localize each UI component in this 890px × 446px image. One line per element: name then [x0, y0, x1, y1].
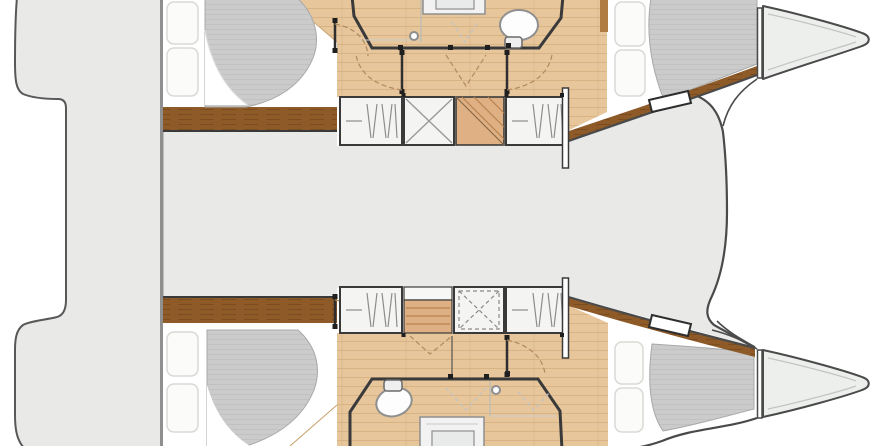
- toilet-tank: [384, 380, 402, 391]
- door-hinge: [333, 18, 338, 23]
- junction-dot: [402, 93, 406, 97]
- pillow: [167, 332, 198, 376]
- shower-drain: [410, 32, 418, 40]
- aft-trim: [163, 297, 337, 323]
- pillow: [615, 50, 645, 96]
- catamaran-floorplan: [0, 0, 890, 446]
- hinge-dot: [398, 45, 403, 50]
- junction-dot: [560, 93, 564, 97]
- door-hinge: [333, 48, 338, 53]
- aft-trim: [163, 107, 337, 131]
- junction-dot: [560, 333, 564, 337]
- sink-basin: [436, 0, 474, 9]
- pillow: [615, 2, 645, 46]
- pillow: [167, 384, 198, 432]
- stairs-landing: [404, 287, 452, 300]
- bow-bulkhead: [758, 350, 763, 418]
- hinge-dot: [448, 45, 453, 50]
- junction-dot: [402, 333, 406, 337]
- toilet: [500, 10, 538, 40]
- door-hinge: [505, 335, 510, 340]
- hinge-dot: [506, 43, 511, 48]
- door-hinge: [505, 50, 510, 55]
- junction-dot: [505, 93, 509, 97]
- sink-basin: [432, 431, 474, 446]
- door-hinge: [505, 372, 510, 377]
- entry-post: [563, 88, 569, 168]
- pillow: [167, 2, 198, 44]
- hinge-dot: [484, 374, 489, 379]
- floorplan-stage: [0, 0, 890, 446]
- transom-divider: [160, 0, 164, 446]
- hinge-dot: [448, 374, 453, 379]
- pillow: [615, 388, 643, 432]
- entry-post: [563, 278, 569, 358]
- door-hinge: [400, 50, 405, 55]
- fwd-wood-sliver: [600, 0, 608, 32]
- hinge-dot: [485, 45, 490, 50]
- bow-bulkhead: [758, 8, 763, 78]
- pillow: [615, 342, 643, 384]
- pillow: [167, 48, 198, 96]
- door-hinge: [333, 324, 338, 329]
- door-hinge: [333, 294, 338, 299]
- shower-drain: [492, 386, 500, 394]
